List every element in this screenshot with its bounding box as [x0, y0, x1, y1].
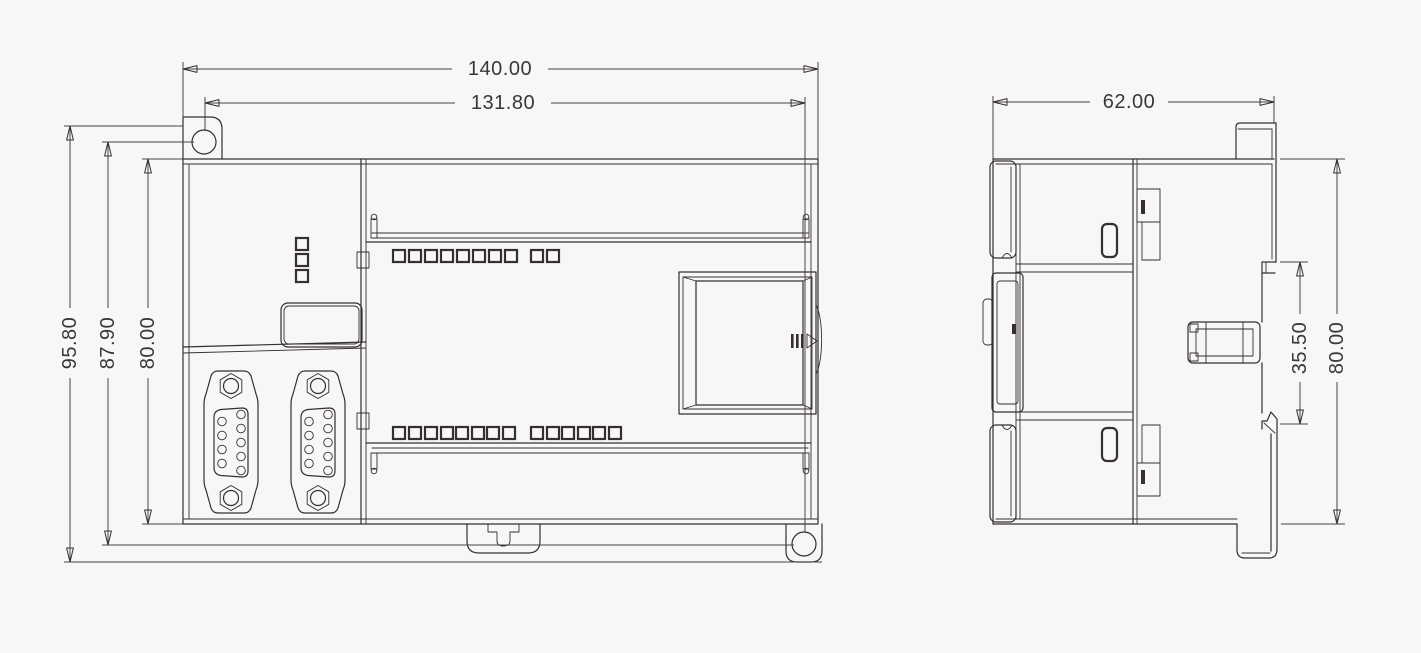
connector-bay-profile: [983, 273, 1023, 412]
dim-label-overall-width: 140.00: [468, 58, 532, 80]
dim-label-hole-span-width: 131.80: [471, 92, 535, 114]
dim-label-overall-depth: 62.00: [1103, 91, 1156, 113]
side-body-outline: [993, 159, 1274, 524]
dsub-pins: [218, 410, 246, 475]
dimension-overall-depth: 62.00: [993, 91, 1274, 159]
dimension-din-latch-span: 35.50: [1280, 262, 1311, 424]
plc-dimension-drawing: 140.00 131.80 95.80: [0, 0, 1421, 653]
din-clip-housing: [1188, 322, 1260, 363]
db9-connector-2: [291, 371, 345, 513]
dimension-hole-span-width: 131.80: [205, 92, 805, 533]
dim-label-hole-span-height: 87.90: [97, 317, 119, 370]
thumb-notch-arc: [816, 305, 822, 374]
dim-label-body-height-front: 80.00: [137, 317, 159, 370]
mounting-hole-bottom-right: [792, 532, 816, 556]
front-view-dimensions: 140.00 131.80 95.80: [59, 58, 822, 562]
rear-top-tab: [1236, 123, 1276, 159]
cpu-panel: [183, 238, 366, 513]
din-rail-latch-front: [467, 524, 540, 553]
expansion-clip-upper: [1137, 189, 1160, 260]
front-view: [183, 117, 822, 562]
mounting-tab-bottom-right: [786, 524, 822, 562]
divider-notch: [357, 413, 369, 429]
side-button-lower: [1102, 428, 1117, 461]
din-latch-slider: [1237, 434, 1277, 558]
side-view: [983, 123, 1277, 558]
upper-terminal-strip: [366, 214, 811, 242]
terminal-cover-top: [990, 161, 1016, 258]
dim-label-din-latch-span: 35.50: [1289, 322, 1311, 375]
lower-terminal-strip: [366, 443, 811, 474]
dsub-pins: [305, 410, 333, 475]
expansion-clip-lower: [1137, 425, 1160, 496]
status-led-column: [296, 238, 308, 282]
led-row-lower: [393, 427, 621, 439]
slide-direction-icon: [791, 334, 817, 348]
side-button-upper: [1102, 224, 1117, 257]
din-latch-tooth: [1262, 412, 1277, 434]
terminal-row-lines: [1016, 264, 1133, 420]
dimension-body-height-front: 80.00: [137, 159, 183, 524]
divider-notch: [357, 252, 369, 268]
din-slot-upper-lip: [1262, 262, 1276, 273]
dim-label-overall-height: 95.80: [59, 317, 81, 370]
io-terminal-area: [357, 214, 822, 474]
rear-face: [1188, 159, 1277, 558]
mounting-hole-top-left: [192, 130, 216, 154]
terminal-cover-bottom: [990, 425, 1016, 522]
enclosure-body-outline: [183, 159, 818, 524]
dimension-overall-height: 95.80: [59, 126, 822, 562]
panel-door: [281, 303, 362, 347]
technical-drawing-canvas: 140.00 131.80 95.80: [0, 0, 1421, 653]
db9-connector-1: [204, 371, 258, 513]
cartridge-door: [679, 272, 822, 414]
side-view-dimensions: 62.00 35.50 80.00: [993, 91, 1348, 524]
dimension-hole-span-height: 87.90: [97, 142, 794, 545]
led-row-upper: [393, 250, 559, 262]
dim-label-body-height-side: 80.00: [1326, 322, 1348, 375]
mounting-tab-top-left: [183, 117, 222, 159]
